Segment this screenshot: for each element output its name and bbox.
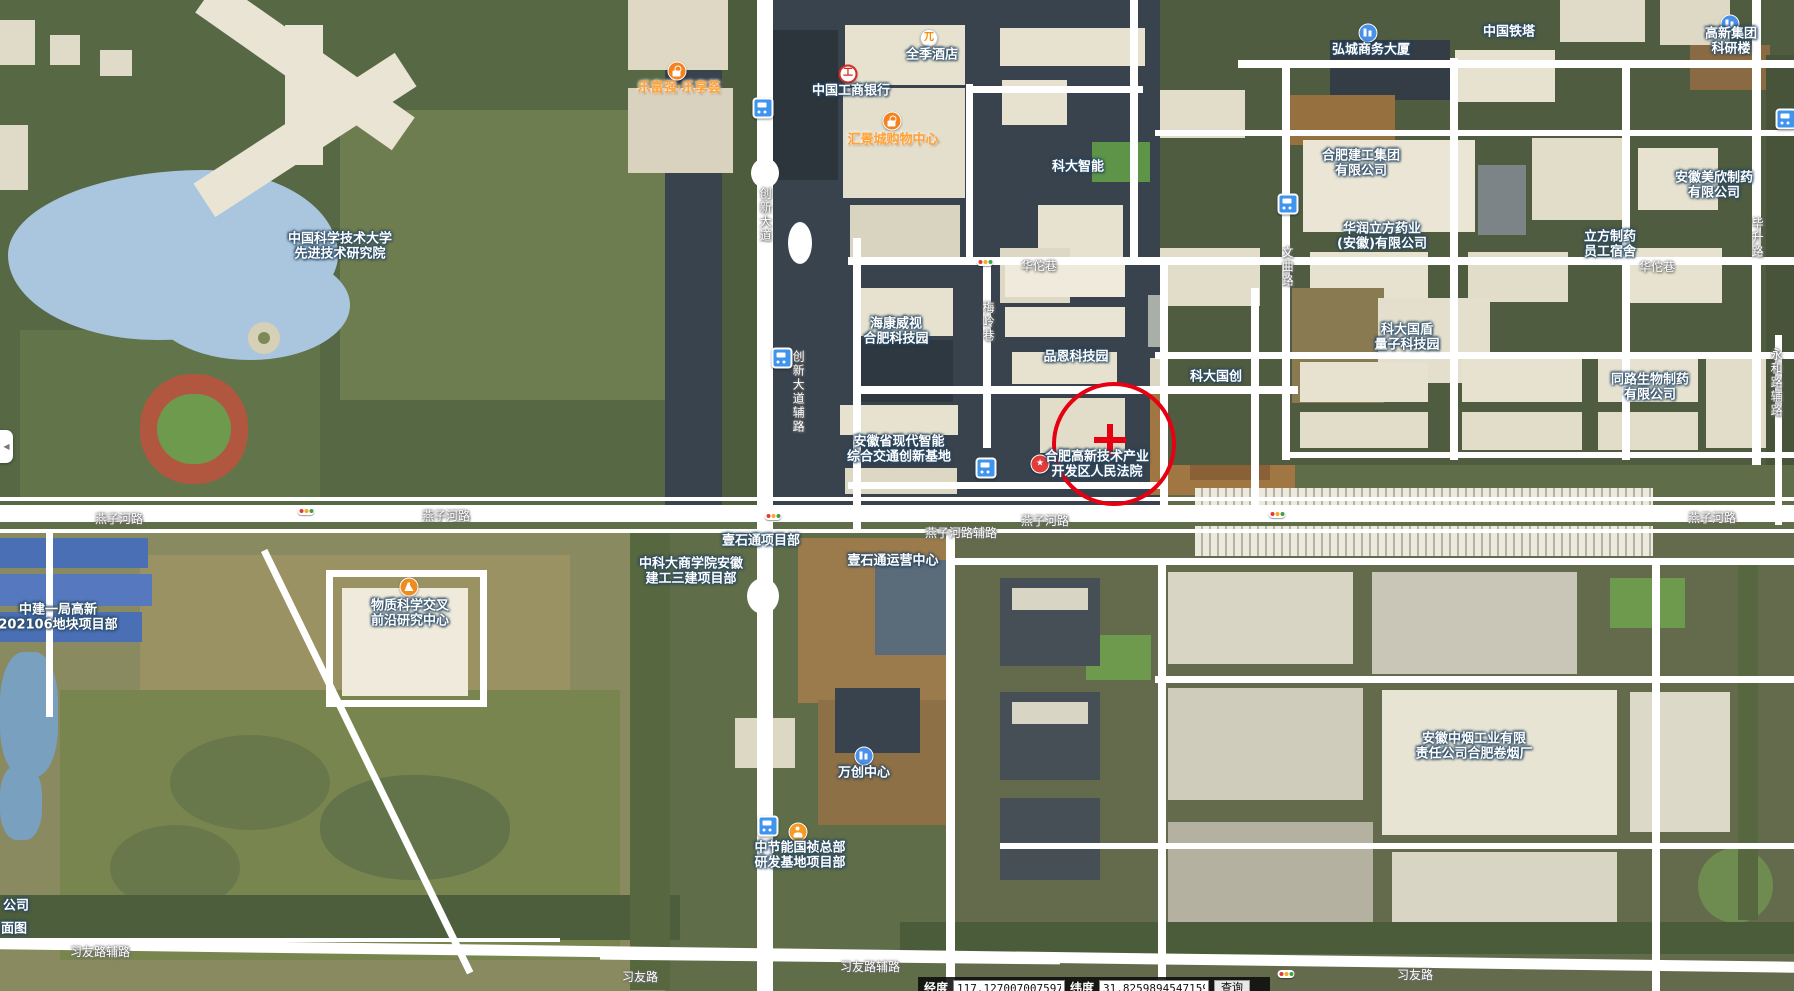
road-label: 燕子河路辅路 (925, 526, 997, 540)
longitude-label: 经度 (924, 980, 948, 991)
road-label: 创新大道 (758, 187, 772, 243)
poi-label[interactable]: 弘城商务大厦 (1332, 42, 1410, 57)
poi-label[interactable]: 安徽中烟工业有限 责任公司合肥卷烟厂 (1415, 732, 1532, 763)
poi-label[interactable]: 中国工商银行 (812, 83, 890, 98)
satellite-map-canvas[interactable]: ◀ 经度 纬度 查询 中国科学技术大学 先进技术研究院乐富强·乐享荟全季酒店中国… (0, 0, 1794, 991)
traffic-light-icon (765, 512, 782, 520)
bus-stop-icon[interactable] (1278, 194, 1299, 215)
road-label: 燕子河路 (1688, 511, 1736, 525)
poi-label[interactable]: 中国铁塔 (1483, 24, 1535, 39)
coordinate-search-button[interactable]: 查询 (1214, 980, 1250, 991)
bus-stop-icon[interactable] (758, 816, 779, 837)
latitude-label: 纬度 (1070, 980, 1094, 991)
office-building-icon[interactable] (855, 747, 874, 766)
road-label: 习友路辅路 (840, 960, 900, 974)
poi-label[interactable]: 中节能国祯总部 研发基地项目部 (754, 841, 845, 872)
poi-label[interactable]: 中国科学技术大学 先进技术研究院 (288, 232, 392, 263)
poi-label[interactable]: 合肥建工集团 有限公司 (1322, 149, 1400, 180)
road-label: 创新大道辅路 (791, 350, 805, 434)
bus-stop-icon[interactable] (976, 458, 997, 479)
road-label: 习友路辅路 (70, 945, 130, 959)
poi-label[interactable]: 安徽省现代智能 综合交通创新基地 (847, 435, 951, 466)
road-label: 燕子河路 (422, 509, 470, 523)
road-label: 永和路辅路 (1769, 348, 1783, 418)
poi-label[interactable]: 万创中心 (838, 765, 890, 780)
poi-label[interactable]: 乐富强·乐享荟 (638, 80, 721, 95)
road-label: 文曲路 (1280, 246, 1294, 288)
coordinate-bar: 经度 纬度 查询 (918, 977, 1270, 991)
traffic-light-icon (977, 258, 994, 266)
office-building-icon[interactable] (1359, 24, 1378, 43)
bank-icbc-icon[interactable]: 工 (839, 65, 858, 84)
poi-label[interactable]: 安徽美欣制药 有限公司 (1675, 171, 1753, 202)
shopping-bag-icon[interactable] (883, 112, 902, 131)
latitude-input[interactable] (1099, 980, 1209, 991)
road-label: 燕子河路 (1021, 514, 1069, 528)
poi-label[interactable]: 中建一局高新 202106地块项目部 (0, 603, 118, 634)
research-flask-icon[interactable] (400, 578, 419, 597)
poi-label[interactable]: 合肥高新技术产业 开发区人民法院 (1045, 450, 1149, 481)
road-label: 习友路 (1397, 968, 1433, 982)
road-label: 燕子河路 (95, 512, 143, 526)
poi-label[interactable]: 汇景城购物中心 (847, 132, 938, 147)
collapse-panel-button[interactable]: ◀ (0, 430, 13, 463)
road-label: 梅岭巷 (981, 301, 995, 343)
bus-stop-icon[interactable] (753, 98, 774, 119)
poi-label[interactable]: 海康威视 合肥科技园 (863, 317, 928, 348)
poi-label[interactable]: 同路生物制药 有限公司 (1611, 373, 1689, 404)
poi-label[interactable]: 科大国创 (1190, 369, 1242, 384)
hotel-icon[interactable]: 兀 (920, 29, 938, 47)
shopping-bag-icon[interactable] (668, 62, 687, 81)
traffic-light-icon (1269, 510, 1286, 518)
construction-worker-icon[interactable] (789, 823, 808, 842)
poi-label[interactable]: 品恩科技园 (1043, 349, 1108, 364)
poi-label[interactable]: 物质科学交叉 前沿研究中心 (371, 599, 449, 630)
poi-label[interactable]: 壹石通运营中心 (847, 553, 938, 568)
road-label: 华佗巷 (1021, 259, 1057, 273)
road-label: 华佗巷 (1639, 260, 1675, 274)
road-label: 习友路 (622, 970, 658, 984)
poi-label[interactable]: 立方制药 员工宿舍 (1584, 230, 1636, 261)
traffic-light-icon (298, 507, 315, 515)
poi-label[interactable]: 中科大商学院安徽 建工三建项目部 (639, 557, 743, 588)
poi-label[interactable]: 华润立方药业 (安徽)有限公司 (1337, 222, 1427, 253)
poi-label[interactable]: 壹石通项目部 (722, 533, 800, 548)
poi-label[interactable]: 面图 (1, 921, 27, 936)
longitude-input[interactable] (953, 980, 1065, 991)
road-label: 毕升路 (1750, 217, 1764, 259)
poi-label[interactable]: 高新集团科研楼 (1700, 27, 1763, 58)
bus-stop-icon[interactable] (1776, 109, 1794, 130)
poi-label[interactable]: 全季酒店 (906, 47, 958, 62)
poi-label[interactable]: 公司 (3, 898, 29, 913)
bus-stop-icon[interactable] (772, 348, 793, 369)
traffic-light-icon (1278, 970, 1295, 978)
poi-label[interactable]: 科大国盾 量子科技园 (1374, 323, 1439, 354)
selection-circle-marker (1052, 382, 1176, 506)
poi-label[interactable]: 科大智能 (1052, 159, 1104, 174)
